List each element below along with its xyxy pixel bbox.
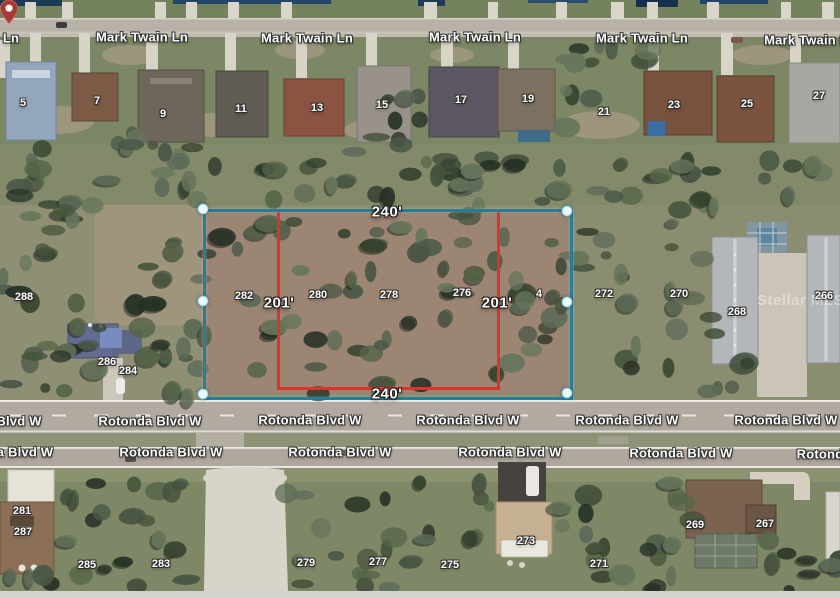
lot-number-label: 21 (598, 106, 610, 118)
street-label: Blvd W (0, 414, 42, 429)
lot-number-label: 285 (78, 559, 96, 571)
street-label: Rotonda Blvd W (629, 446, 732, 461)
photo-frame-bar (0, 591, 840, 597)
location-pin-icon (0, 0, 18, 24)
street-label: Rotonda Blvd W (575, 413, 678, 428)
parcel-boundary-outline (203, 209, 573, 400)
lot-number-label: 271 (590, 558, 608, 570)
lot-number-label: 280 (309, 289, 327, 301)
dimension-label: 240' (372, 386, 403, 403)
lot-number-label: 270 (670, 288, 688, 300)
lot-number-label: 4 (536, 288, 542, 300)
dimension-label: 201' (482, 295, 513, 312)
lot-number-label: 286 (98, 356, 116, 368)
street-label: Mark Twain Ln (261, 31, 353, 46)
lot-number-label: 267 (756, 518, 774, 530)
lot-number-label: 283 (152, 558, 170, 570)
street-label: Rotonda Blvd W (288, 445, 391, 460)
lot-number-label: 284 (119, 365, 137, 377)
lot-number-label: 13 (311, 102, 323, 114)
street-label: a Blvd W (0, 445, 53, 460)
boundary-handle (562, 388, 573, 399)
street-label: Mark Twain Ln (596, 31, 688, 46)
street-label: Mark Twain Ln (429, 30, 521, 45)
boundary-handle (198, 296, 209, 307)
dimension-label: 240' (372, 204, 403, 221)
lot-number-label: 277 (369, 556, 387, 568)
lot-number-label: 23 (668, 99, 680, 111)
lot-number-label: 272 (595, 288, 613, 300)
satellite-map-photo: LnMark Twain LnMark Twain LnMark Twain L… (0, 0, 840, 597)
street-label: Rotond (797, 447, 840, 462)
lot-number-label: 275 (441, 559, 459, 571)
lot-number-label: 25 (741, 98, 753, 110)
lot-number-label: 7 (94, 95, 100, 107)
annotation-overlay: LnMark Twain LnMark Twain LnMark Twain L… (0, 0, 840, 597)
boundary-handle (198, 389, 209, 400)
boundary-handle (562, 206, 573, 217)
watermark: Stellar MLS (757, 292, 840, 309)
lot-number-label: 269 (686, 519, 704, 531)
street-label: Rotonda Blvd W (734, 413, 837, 428)
boundary-handle (198, 204, 209, 215)
lot-number-label: 9 (160, 108, 166, 120)
dimension-label: 201' (264, 295, 295, 312)
street-label: Rotonda Blvd W (458, 445, 561, 460)
lot-number-label: 279 (297, 557, 315, 569)
boundary-handle (562, 297, 573, 308)
street-label: Rotonda Blvd W (258, 413, 361, 428)
street-label: Rotonda Blvd W (98, 414, 201, 429)
lot-number-label: 276 (453, 287, 471, 299)
lot-number-label: 287 (14, 526, 32, 538)
lot-number-label: 11 (235, 103, 247, 115)
lot-number-label: 27 (813, 90, 825, 102)
lot-number-label: 268 (728, 306, 746, 318)
lot-number-label: 15 (376, 99, 388, 111)
street-label: Ln (3, 31, 19, 46)
lot-number-label: 5 (20, 97, 26, 109)
street-label: Mark Twain L (764, 33, 840, 48)
street-label: Rotonda Blvd W (119, 445, 222, 460)
lot-number-label: 273 (517, 535, 535, 547)
lot-number-label: 278 (380, 289, 398, 301)
street-label: Rotonda Blvd W (416, 413, 519, 428)
lot-number-label: 19 (522, 93, 534, 105)
lot-number-label: 17 (455, 94, 467, 106)
street-label: Mark Twain Ln (96, 30, 188, 45)
lot-number-label: 288 (15, 291, 33, 303)
lot-number-label: 281 (13, 505, 31, 517)
lot-number-label: 282 (235, 290, 253, 302)
